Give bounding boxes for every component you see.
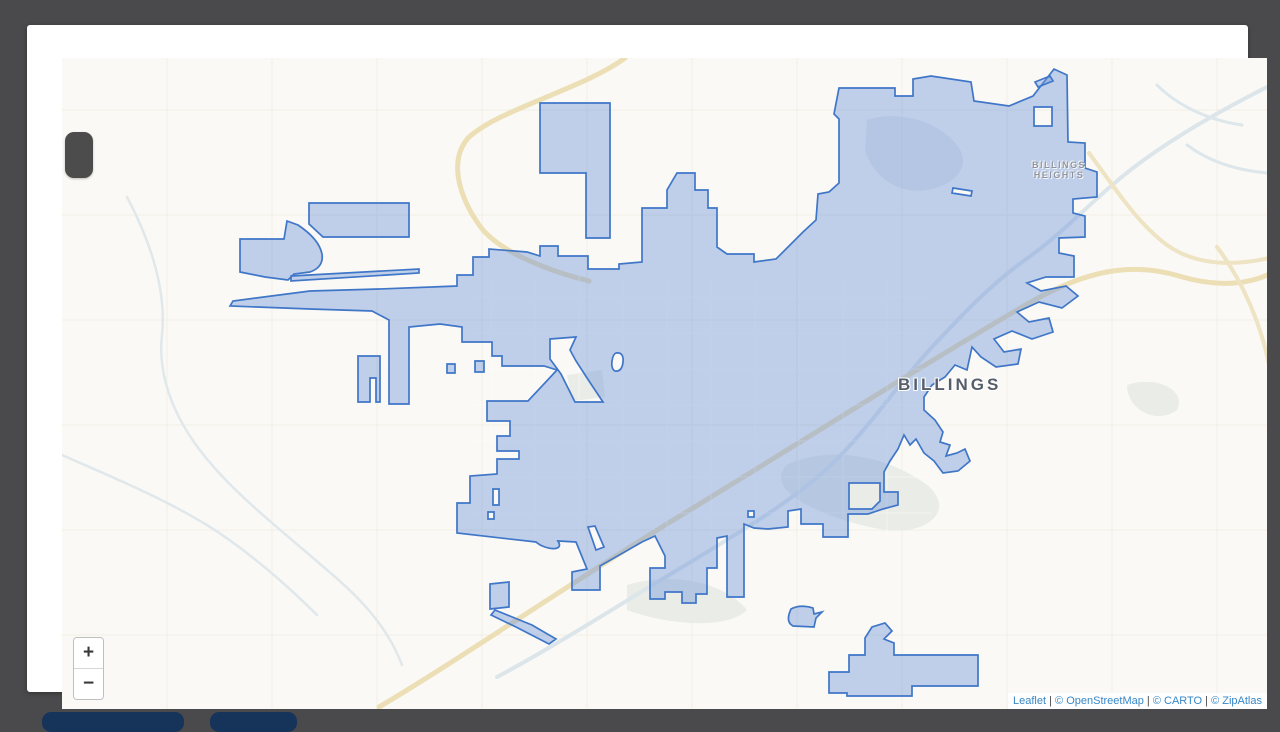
city-boundary-polygon [230, 69, 1097, 603]
drag-handle[interactable] [65, 132, 93, 178]
page: { "theme": { "page-bg": "#4a4a4c", "card… [0, 0, 1280, 720]
attribution-link[interactable]: Leaflet [1013, 695, 1046, 707]
attribution-link[interactable]: © OpenStreetMap [1055, 695, 1144, 707]
river-west-creeks [62, 197, 402, 665]
attribution-separator: | [1202, 695, 1211, 707]
city-label-billings: BILLINGS [898, 375, 1001, 395]
attribution-link[interactable]: © CARTO [1153, 695, 1202, 707]
city-label-billings-heights: BILLINGS HEIGHTS [1024, 161, 1094, 180]
river-ne-braids [1157, 85, 1267, 173]
map-svg [62, 58, 1267, 709]
attribution-separator: | [1046, 695, 1055, 707]
map-viewport[interactable]: BILLINGS BILLINGS HEIGHTS + − Leaflet | … [62, 58, 1267, 709]
zoom-out-button[interactable]: − [74, 669, 103, 699]
highway-northeast [1089, 153, 1267, 370]
bottom-button-2[interactable] [210, 712, 297, 732]
zoom-control: + − [73, 637, 104, 700]
attribution-separator: | [1144, 695, 1153, 707]
zoom-in-button[interactable]: + [74, 638, 103, 669]
bottom-button-1[interactable] [42, 712, 184, 732]
map-attribution: Leaflet | © OpenStreetMap | © CARTO | © … [1008, 693, 1267, 709]
map-card: BILLINGS BILLINGS HEIGHTS + − Leaflet | … [27, 25, 1248, 692]
attribution-link[interactable]: © ZipAtlas [1211, 695, 1262, 707]
